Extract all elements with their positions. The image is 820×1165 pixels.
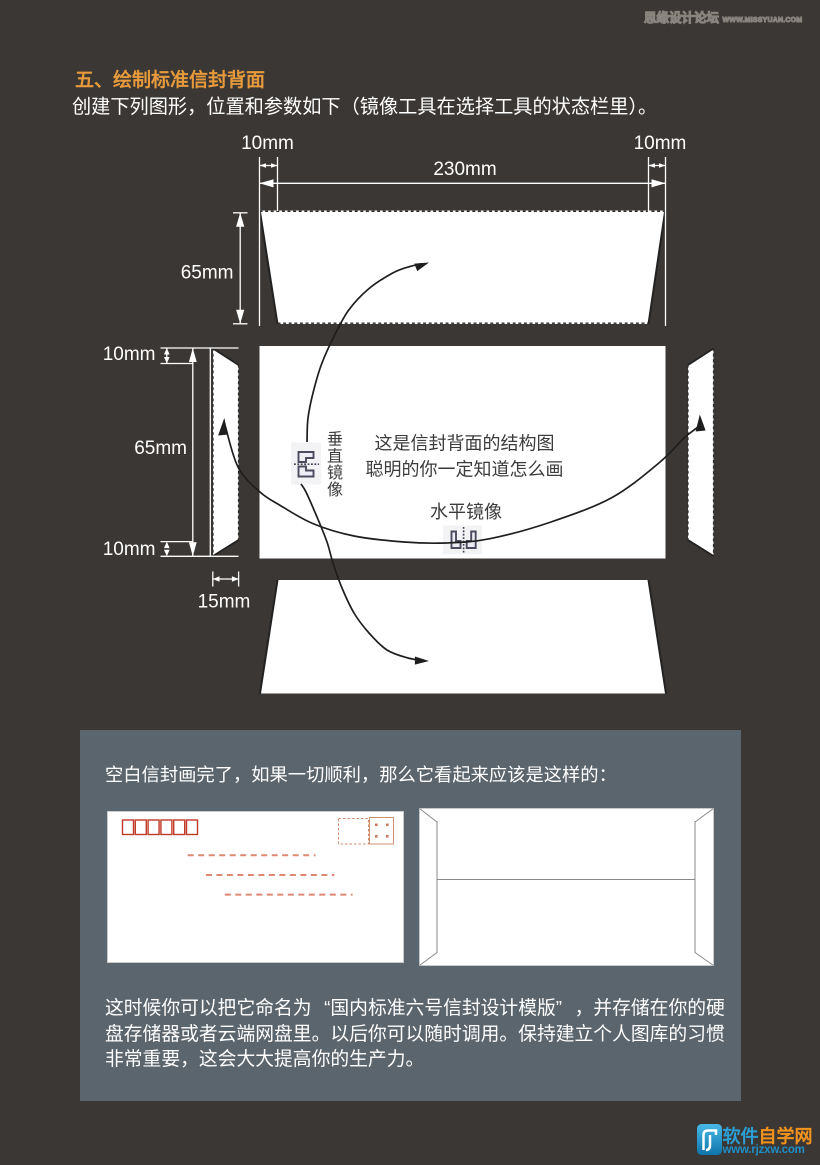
svg-text:10mm: 10mm — [103, 344, 156, 365]
svg-text:像: 像 — [327, 481, 343, 499]
svg-text:www.rjzxw.com: www.rjzxw.com — [722, 1144, 805, 1156]
svg-text:10mm: 10mm — [103, 539, 156, 560]
svg-text:聪明的你一定知道怎么画: 聪明的你一定知道怎么画 — [366, 460, 564, 480]
svg-text:垂: 垂 — [327, 431, 343, 449]
svg-text:10mm: 10mm — [241, 133, 294, 154]
svg-text:65mm: 65mm — [181, 263, 234, 284]
svg-text:直: 直 — [327, 447, 343, 465]
svg-text:15mm: 15mm — [198, 592, 251, 613]
svg-text:230mm: 230mm — [433, 159, 496, 180]
svg-text:65mm: 65mm — [134, 438, 187, 459]
svg-text:水平镜像: 水平镜像 — [430, 502, 502, 522]
svg-text:10mm: 10mm — [634, 133, 687, 154]
svg-text:镜: 镜 — [327, 463, 343, 482]
svg-text:这是信封背面的结构图: 这是信封背面的结构图 — [375, 434, 555, 454]
